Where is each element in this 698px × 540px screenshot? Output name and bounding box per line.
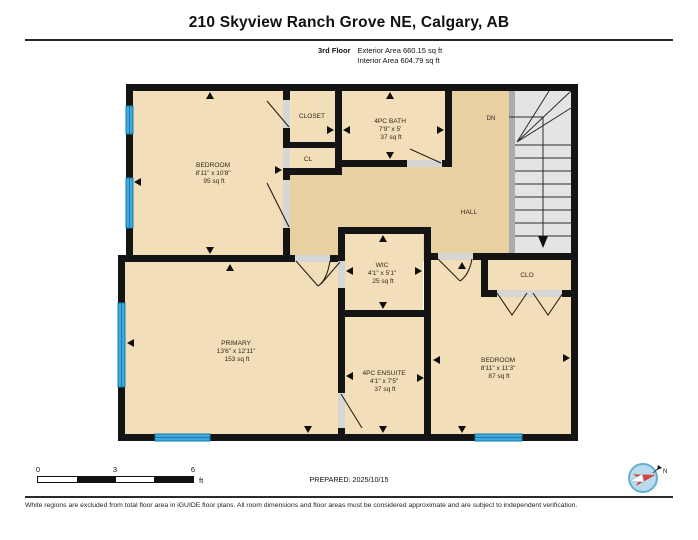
scale-tick-6: 6 (187, 465, 199, 474)
north-arrow-icon (657, 465, 662, 470)
label-cl: CL (304, 156, 313, 163)
scale-bar: 0 3 6 ft (35, 465, 225, 474)
footer-divider (25, 496, 673, 498)
disclaimer-text: White regions are excluded from total fl… (25, 502, 685, 509)
label-clo: CLO (520, 272, 533, 279)
floor-plan: BEDROOM 8'11" x 10'8" 95 sq ft CLOSET CL… (0, 0, 698, 540)
prepared-date: PREPARED: 2025/10/15 (0, 475, 698, 484)
room-cl (290, 148, 335, 168)
label-stairs-dn: DN (487, 116, 496, 122)
scale-tick-0: 0 (32, 465, 44, 474)
label-hall: HALL (461, 209, 478, 216)
stairs (509, 91, 571, 253)
label-closet: CLOSET (299, 113, 325, 120)
scale-tick-3: 3 (109, 465, 121, 474)
floorplan-page: 210 Skyview Ranch Grove NE, Calgary, AB … (0, 0, 698, 540)
